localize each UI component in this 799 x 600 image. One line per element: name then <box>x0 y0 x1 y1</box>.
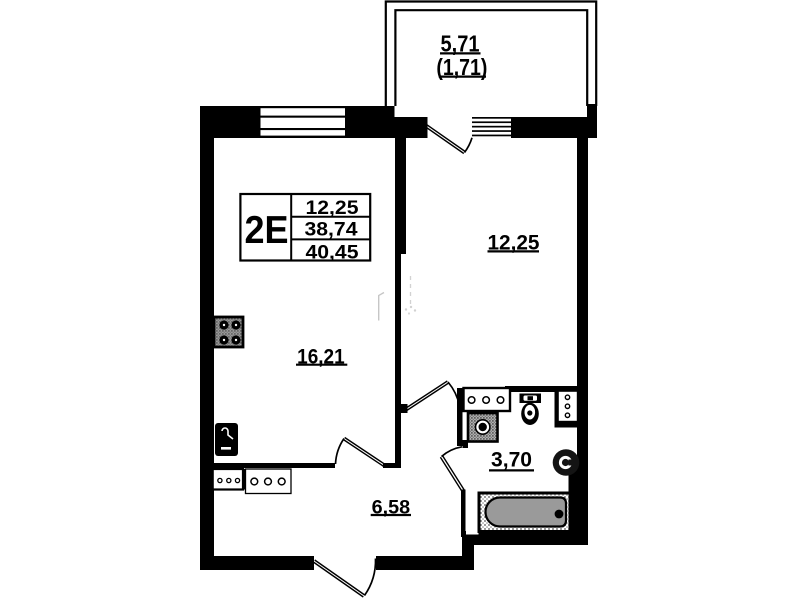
svg-text:3,70: 3,70 <box>491 447 532 471</box>
svg-text:2E: 2E <box>245 209 289 252</box>
svg-text:38,74: 38,74 <box>305 218 358 240</box>
svg-text:12,25: 12,25 <box>306 197 359 219</box>
svg-text:40,45: 40,45 <box>306 241 359 263</box>
